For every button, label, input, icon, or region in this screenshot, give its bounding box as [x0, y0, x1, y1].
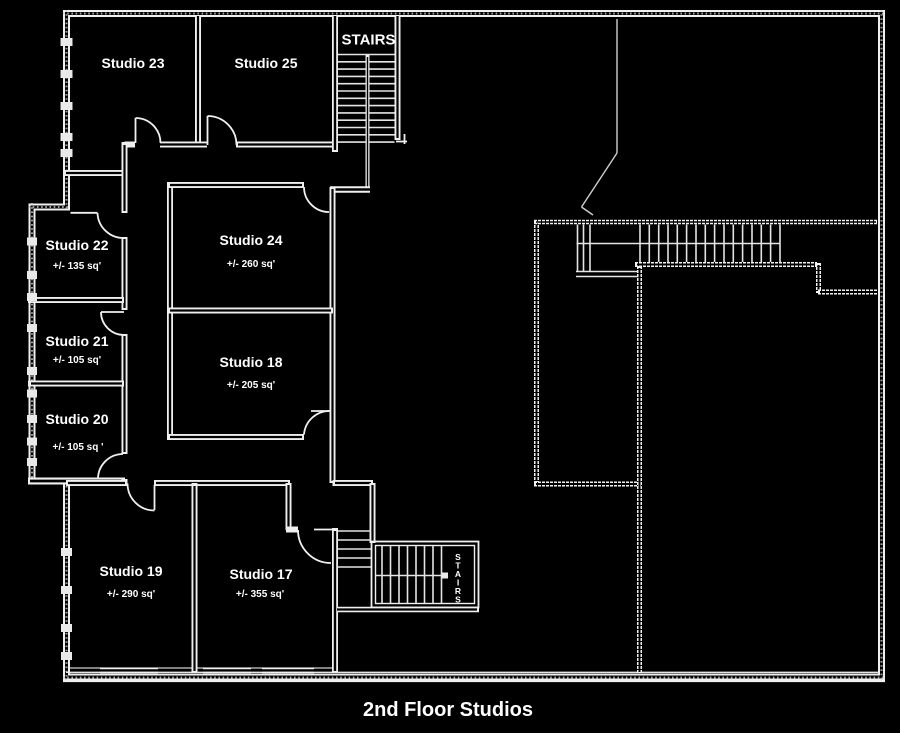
svg-text:+/- 260 sq': +/- 260 sq': [227, 259, 275, 270]
svg-text:+/- 105 sq ': +/- 105 sq ': [52, 442, 103, 453]
svg-text:+/- 290 sq': +/- 290 sq': [107, 589, 155, 600]
svg-text:Studio 18: Studio 18: [219, 354, 282, 370]
svg-text:STAIRS: STAIRS: [342, 32, 396, 49]
svg-text:Studio 17: Studio 17: [229, 566, 292, 582]
svg-text:Studio 24: Studio 24: [219, 232, 282, 248]
svg-text:2nd Floor Studios: 2nd Floor Studios: [363, 699, 533, 721]
svg-text:Studio 21: Studio 21: [45, 333, 108, 349]
svg-text:Studio 22: Studio 22: [45, 237, 108, 253]
svg-text:Studio 25: Studio 25: [234, 55, 297, 71]
svg-text:S: S: [455, 595, 461, 605]
svg-text:+/- 205 sq': +/- 205 sq': [227, 380, 275, 391]
svg-text:Studio 20: Studio 20: [45, 411, 108, 427]
svg-text:+/- 105 sq': +/- 105 sq': [53, 355, 101, 366]
svg-text:Studio 19: Studio 19: [99, 563, 162, 579]
svg-text:Studio 23: Studio 23: [101, 55, 164, 71]
svg-text:+/- 135 sq': +/- 135 sq': [53, 261, 101, 272]
svg-text:+/- 355 sq': +/- 355 sq': [236, 589, 284, 600]
